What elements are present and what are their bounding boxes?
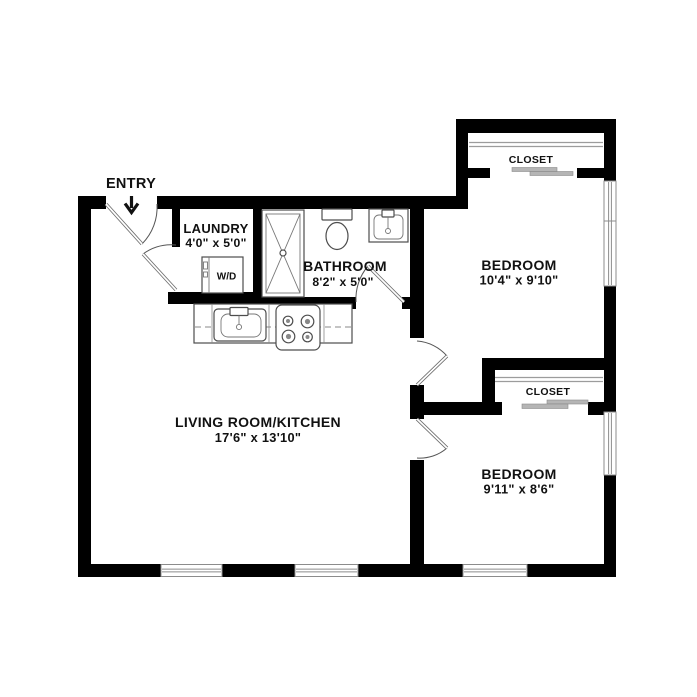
wall-closet1-bottom-right [577, 168, 604, 178]
bedroom1-label: BEDROOM [481, 257, 556, 273]
toilet [322, 209, 352, 250]
wall-bottom-1 [78, 564, 161, 577]
wall-bottom-4 [527, 564, 616, 577]
entry-arrow-icon [125, 196, 138, 213]
bathroom-dimensions: 8'2" x 5'0" [312, 275, 373, 289]
wall-laundry-bottom [168, 292, 262, 304]
wall-bedrooms-vertical-lower [410, 460, 424, 577]
wall-laundry-left [172, 209, 180, 247]
window-living-bottom-2 [295, 565, 358, 577]
bedroom2-closet-label: CLOSET [526, 386, 571, 398]
washer-dryer: W/D [202, 257, 243, 293]
kitchen-sink [214, 308, 266, 342]
bedroom2-label: BEDROOM [481, 466, 556, 482]
window-living-bottom-1 [161, 565, 222, 577]
wall-right-a [604, 119, 616, 181]
washer-dryer-label: W/D [217, 272, 236, 283]
bathroom-label: BATHROOM [303, 258, 387, 274]
wall-right-c [604, 475, 616, 577]
window-bedroom2-right [604, 412, 616, 475]
wall-laundry-bath-divider [253, 209, 262, 297]
window-bedroom2-bottom [463, 565, 527, 577]
living-kitchen-label: LIVING ROOM/KITCHEN [175, 414, 341, 430]
wall-bedrooms-vertical-upper [410, 209, 424, 338]
wall-closet2-top [482, 358, 616, 370]
window-bedroom1-right [604, 181, 616, 286]
wall-closet2-bottom-right [588, 402, 604, 415]
wall-top-main [157, 196, 468, 209]
entry-label: ENTRY [106, 176, 156, 192]
wall-top-left-stub [78, 196, 106, 209]
walls [78, 119, 616, 577]
closet1-sliding-door-a [512, 168, 557, 172]
bedroom1-closet-label: CLOSET [509, 154, 554, 166]
wall-right-b [604, 286, 616, 412]
wall-closet2-bottom-left [482, 402, 502, 415]
laundry-dimensions: 4'0" x 5'0" [185, 236, 246, 250]
bedroom2-door [417, 419, 447, 458]
wall-bottom-2 [222, 564, 295, 577]
bedroom1-dimensions: 10'4" x 9'10" [479, 273, 558, 288]
closet2-sliding-door-b [522, 404, 568, 409]
laundry-door [143, 245, 176, 290]
wall-bedrooms-divider [417, 402, 485, 415]
floor-plan: W/D ENTRY LAUNDRY 4'0" x 5'0" BATHROOM 8… [0, 0, 697, 697]
bedroom1-door [417, 341, 447, 385]
stove [276, 305, 320, 350]
laundry-label: LAUNDRY [183, 221, 248, 236]
shower [262, 210, 304, 297]
living-kitchen-dimensions: 17'6" x 13'10" [215, 430, 301, 445]
closet2-sliding-door-a [547, 400, 588, 404]
bathroom-sink [369, 209, 408, 242]
wall-left [78, 196, 91, 577]
floor-plan-canvas: W/D ENTRY LAUNDRY 4'0" x 5'0" BATHROOM 8… [0, 0, 697, 697]
wall-closet1-bottom-left [456, 168, 490, 178]
closet1-sliding-door-b [530, 172, 573, 176]
wall-bedroom-block-top [456, 119, 616, 133]
bedroom2-dimensions: 9'11" x 8'6" [484, 482, 555, 497]
